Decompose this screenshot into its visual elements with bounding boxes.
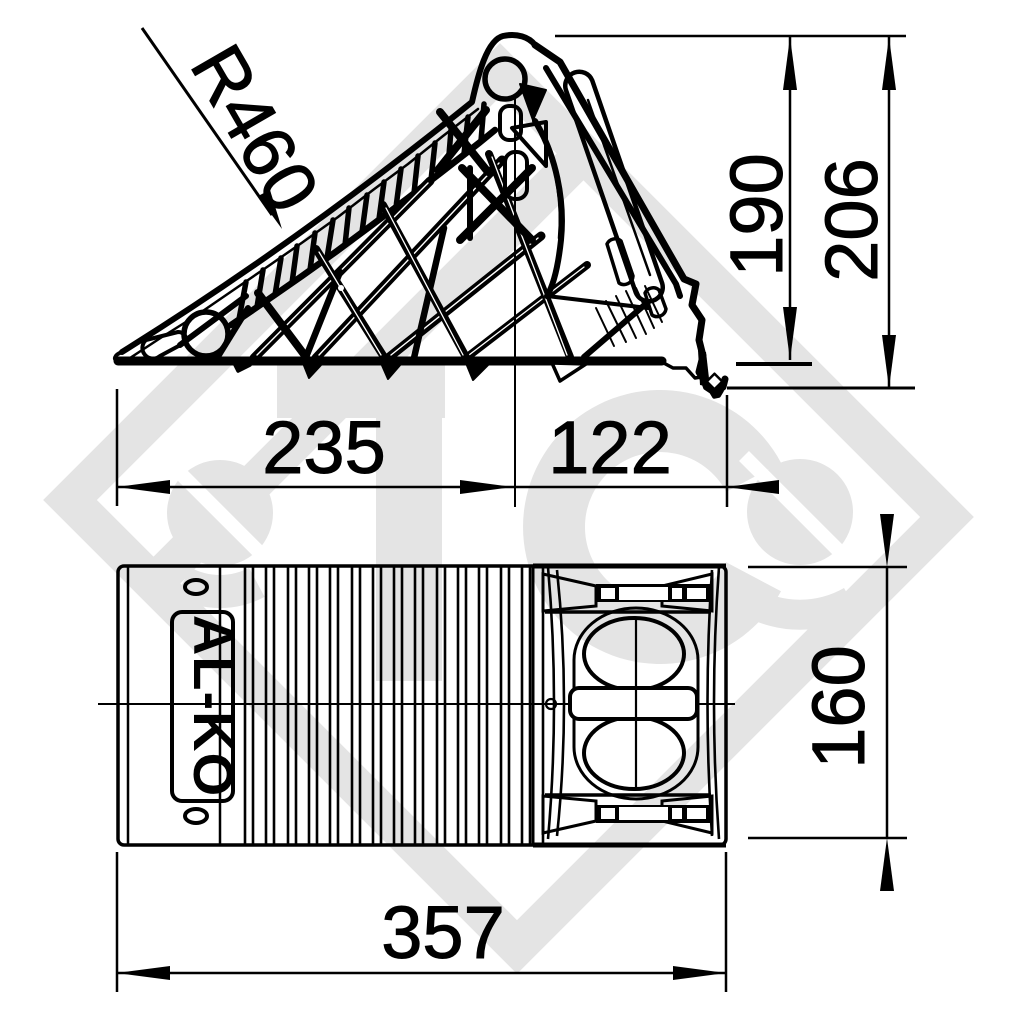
svg-text:357: 357 <box>381 891 504 974</box>
svg-text:AL-KO: AL-KO <box>182 615 245 797</box>
svg-text:190: 190 <box>715 153 798 276</box>
svg-text:122: 122 <box>548 406 671 489</box>
svg-text:235: 235 <box>262 406 385 489</box>
svg-text:206: 206 <box>810 158 893 281</box>
svg-text:160: 160 <box>797 645 880 768</box>
